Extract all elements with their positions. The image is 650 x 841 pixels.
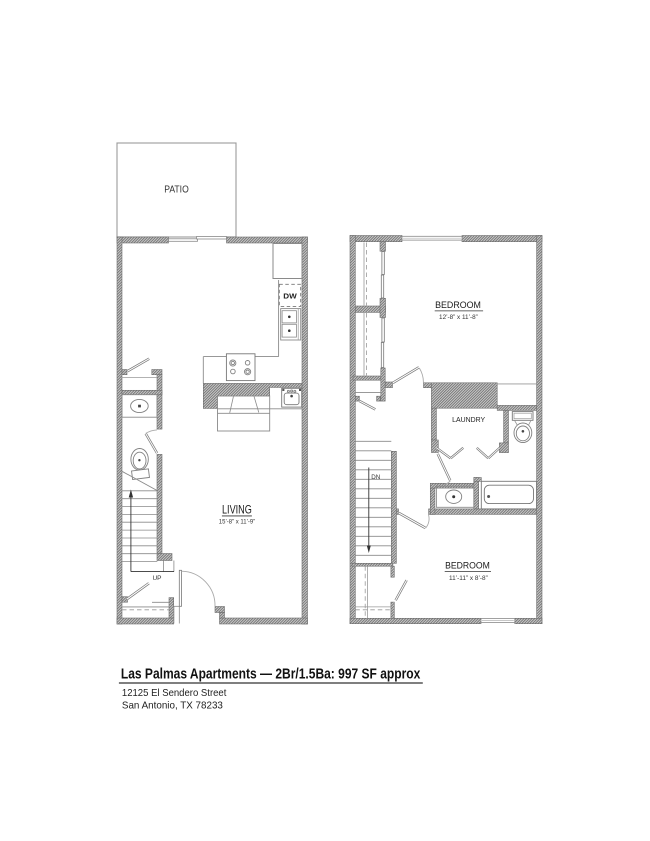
svg-text:DN: DN xyxy=(371,474,380,481)
svg-text:San Antonio, TX 78233: San Antonio, TX 78233 xyxy=(122,700,223,711)
svg-text:BEDROOM: BEDROOM xyxy=(435,300,481,310)
svg-text:LAUNDRY: LAUNDRY xyxy=(452,417,485,424)
svg-text:PATIO: PATIO xyxy=(164,184,189,196)
svg-text:LIVING: LIVING xyxy=(222,503,252,517)
svg-text:15’-8” x 11’-9”: 15’-8” x 11’-9” xyxy=(219,519,255,526)
svg-text:12125 El Sendero Street: 12125 El Sendero Street xyxy=(122,688,227,699)
svg-text:BEDROOM: BEDROOM xyxy=(445,561,490,571)
svg-text:DW: DW xyxy=(283,291,297,300)
svg-text:12’-8” x 11’-8”: 12’-8” x 11’-8” xyxy=(439,314,478,321)
svg-text:11’-11” x 8’-8”: 11’-11” x 8’-8” xyxy=(449,575,488,582)
svg-text:Las Palmas Apartments — 2Br/1.: Las Palmas Apartments — 2Br/1.5Ba: 997 S… xyxy=(121,665,421,682)
svg-text:UP: UP xyxy=(153,575,162,582)
